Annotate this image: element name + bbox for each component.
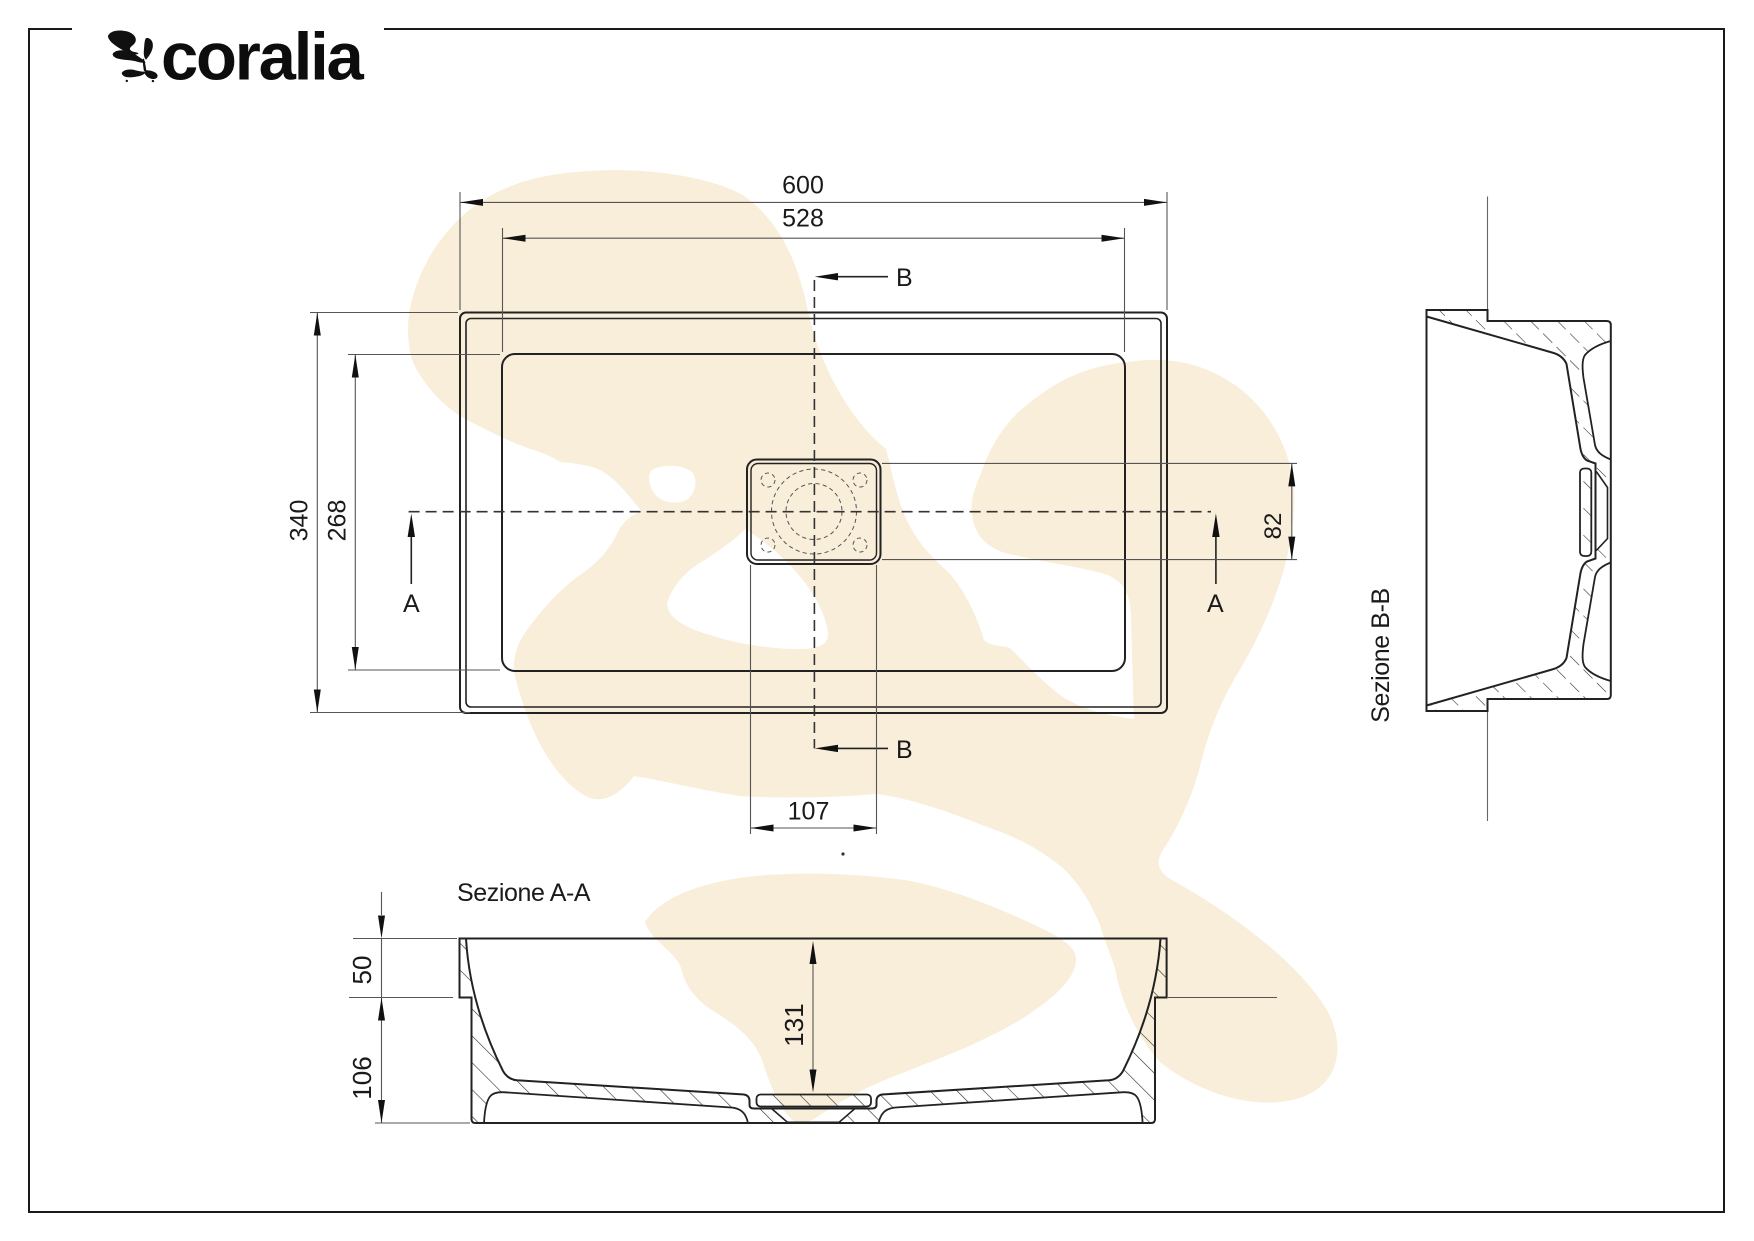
svg-text:B: B — [896, 264, 913, 292]
svg-text:340: 340 — [286, 500, 314, 542]
svg-text:131: 131 — [779, 1003, 809, 1046]
svg-text:Sezione B-B: Sezione B-B — [1367, 588, 1395, 723]
svg-text:528: 528 — [782, 205, 824, 233]
svg-text:106: 106 — [347, 1056, 377, 1099]
svg-text:107: 107 — [788, 798, 830, 826]
svg-text:B: B — [896, 736, 913, 764]
svg-text:600: 600 — [782, 172, 824, 200]
svg-text:268: 268 — [324, 500, 352, 542]
svg-text:50: 50 — [347, 956, 377, 985]
svg-text:coralia: coralia — [161, 20, 365, 95]
svg-text:Sezione A-A: Sezione A-A — [457, 879, 591, 907]
svg-text:A: A — [1207, 590, 1224, 618]
svg-text:82: 82 — [1260, 513, 1287, 540]
svg-text:A: A — [403, 590, 420, 618]
